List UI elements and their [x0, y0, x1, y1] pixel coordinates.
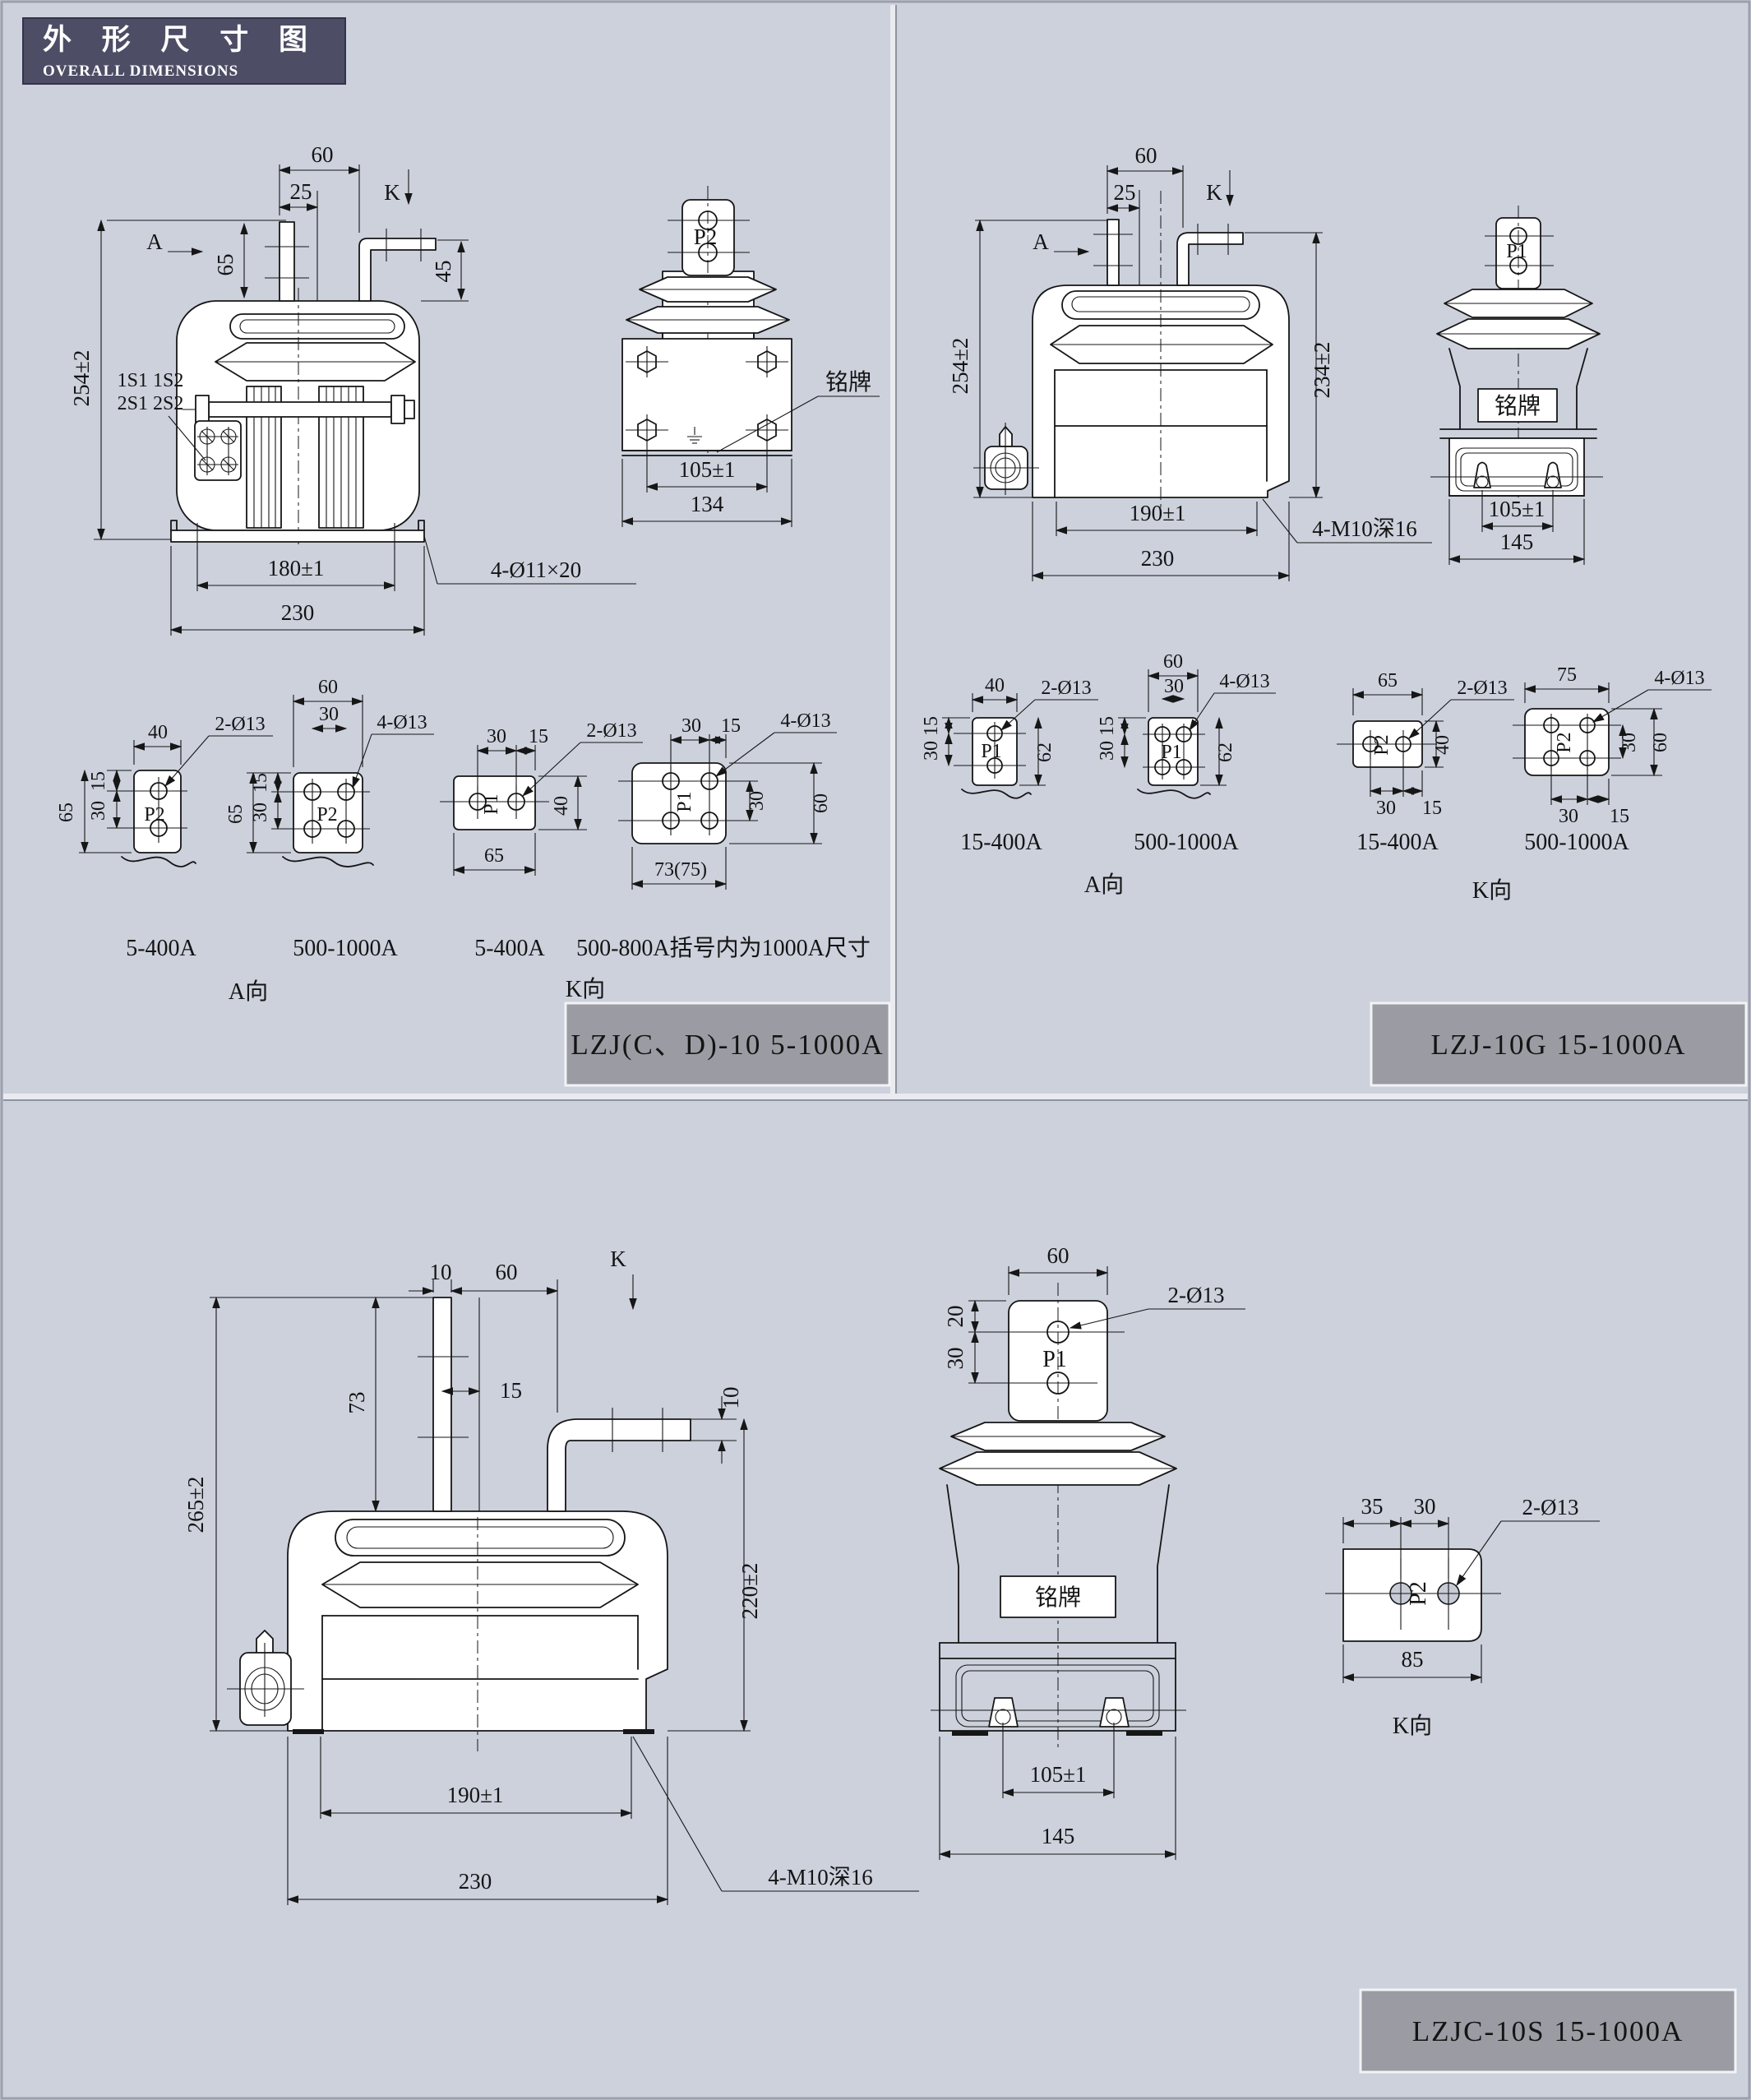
dim-105: 105±1: [1489, 497, 1545, 521]
range-label: 15-400A: [1356, 830, 1439, 855]
dim-15: 15: [529, 726, 548, 747]
view-arrow-k: K: [1206, 180, 1222, 205]
label-holes-2-13: 2-Ø13: [1457, 678, 1507, 699]
label-holes-4-13: 4-Ø13: [377, 712, 427, 733]
label-nameplate: 铭牌: [1495, 393, 1541, 419]
label-holes-4-11: 4-Ø11×20: [491, 557, 581, 582]
dim-105: 105±1: [1030, 1762, 1087, 1787]
terminal-p2: P2: [316, 804, 337, 826]
dim-25: 25: [290, 179, 312, 204]
header-title-cn: 外 形 尺 寸 图: [43, 24, 319, 56]
dim-65: 65: [56, 803, 77, 822]
view-arrow-k: K: [384, 180, 400, 205]
dim-60: 60: [811, 793, 832, 813]
dim-65: 65: [484, 845, 504, 867]
dim-85: 85: [1402, 1647, 1424, 1672]
label-m10: 4-M10深16: [1312, 516, 1417, 541]
dim-145: 145: [1500, 530, 1534, 554]
dim-220: 220±2: [737, 1563, 762, 1620]
view-arrow-k: K: [610, 1247, 626, 1271]
dim-230: 230: [1141, 546, 1175, 571]
title-bar-left: LZJ(C、D)-10 5-1000A: [566, 1003, 889, 1085]
view-label-k: K向: [566, 976, 605, 1002]
terminal-p1: P1: [1161, 742, 1181, 763]
dim-190: 190±1: [1130, 501, 1186, 525]
view-label-k: K向: [1393, 1713, 1432, 1739]
range-label: 500-1000A: [1134, 830, 1239, 855]
dim-15: 15: [721, 715, 741, 737]
dim-65: 65: [1378, 670, 1398, 692]
dim-60: 60: [318, 677, 338, 698]
dim-15: 15: [1422, 798, 1442, 819]
dim-30: 30: [1164, 676, 1184, 697]
title-bar-right: LZJ-10G 15-1000A: [1371, 1003, 1746, 1085]
dim-40: 40: [985, 675, 1005, 696]
dim-30: 30: [88, 801, 109, 821]
dim-40: 40: [551, 796, 572, 816]
dim-190: 190±1: [447, 1783, 504, 1807]
dim-73-75: 73(75): [654, 859, 707, 881]
label-holes-2-13: 2-Ø13: [1522, 1495, 1579, 1519]
dim-15: 15: [88, 771, 109, 791]
terminal-p2: P2: [694, 224, 718, 249]
dim-15: 15: [1610, 806, 1629, 827]
dim-60: 60: [312, 142, 334, 167]
dim-10: 10: [718, 1387, 743, 1409]
label-nameplate: 铭牌: [1035, 1584, 1081, 1611]
range-label: 5-400A: [126, 936, 196, 961]
dim-62: 62: [1034, 742, 1056, 762]
dim-73: 73: [344, 1392, 369, 1414]
dim-35: 35: [1361, 1494, 1384, 1519]
dim-60: 60: [1650, 733, 1671, 752]
dim-30: 30: [487, 726, 506, 747]
dim-30: 30: [319, 704, 339, 725]
dim-230: 230: [281, 600, 315, 625]
range-label: 500-1000A: [1524, 830, 1629, 855]
range-note: 500-800A括号内为1000A尺寸: [576, 935, 871, 961]
terminal-p2: P2: [1554, 732, 1575, 752]
dim-30: 30: [746, 791, 768, 811]
dim-15: 15: [921, 716, 942, 736]
overall-dimensions-drawing: 外 形 尺 寸 图 OVERALL DIMENSIONS: [0, 0, 1751, 2100]
label-holes-4-13: 4-Ø13: [1219, 671, 1269, 692]
terminal-p1: P1: [674, 791, 695, 812]
terminal-p2: P2: [1406, 1581, 1431, 1606]
dim-230: 230: [459, 1869, 492, 1894]
dim-105: 105±1: [679, 457, 736, 482]
dim-60: 60: [1163, 651, 1183, 673]
terminal-p2: P2: [1371, 734, 1393, 755]
dim-145: 145: [1042, 1824, 1075, 1848]
title-bottom: LZJC-10S 15-1000A: [1412, 2015, 1684, 2047]
view-label-a: A向: [1084, 872, 1124, 898]
header-title-en: OVERALL DIMENSIONS: [43, 62, 238, 80]
label-nameplate: 铭牌: [825, 369, 871, 395]
label-holes-2-13: 2-Ø13: [1041, 678, 1091, 699]
view-label-k: K向: [1472, 877, 1512, 904]
dim-40: 40: [148, 722, 168, 743]
title-bar-bottom: LZJC-10S 15-1000A: [1361, 1990, 1735, 2072]
dim-30: 30: [1376, 798, 1396, 819]
dim-254: 254±2: [948, 338, 973, 395]
label-secondary-bottom: 2S1 2S2: [118, 393, 184, 414]
dim-25: 25: [1114, 180, 1136, 205]
dim-60: 60: [1047, 1243, 1070, 1268]
dim-15: 15: [1097, 716, 1118, 736]
dim-20: 20: [943, 1306, 968, 1328]
range-label: 15-400A: [960, 830, 1042, 855]
dim-15: 15: [500, 1378, 522, 1403]
dim-62: 62: [1215, 742, 1236, 762]
dim-234: 234±2: [1310, 342, 1334, 399]
label-holes-2-13: 2-Ø13: [1168, 1283, 1225, 1307]
dim-30: 30: [921, 741, 942, 761]
label-holes-4-13: 4-Ø13: [780, 710, 830, 732]
range-label: 5-400A: [474, 936, 545, 961]
dim-65: 65: [213, 254, 238, 276]
drawing-sheet: 外 形 尺 寸 图 OVERALL DIMENSIONS: [0, 0, 1751, 2100]
dim-30: 30: [681, 715, 701, 737]
label-secondary-top: 1S1 1S2: [118, 370, 184, 391]
dim-60: 60: [1135, 143, 1157, 168]
dim-30: 30: [1619, 733, 1640, 752]
terminal-p1: P1: [1042, 1347, 1067, 1372]
dim-40: 40: [1432, 735, 1453, 755]
title-left: LZJ(C、D)-10 5-1000A: [571, 1029, 884, 1061]
dim-75: 75: [1557, 664, 1577, 686]
header: 外 形 尺 寸 图 OVERALL DIMENSIONS: [23, 18, 345, 84]
dim-30: 30: [943, 1348, 968, 1370]
terminal-p1: P1: [1506, 241, 1527, 262]
dim-134: 134: [691, 492, 724, 516]
dim-65: 65: [225, 804, 247, 824]
dim-30: 30: [1097, 741, 1118, 761]
dim-30: 30: [1559, 806, 1578, 827]
range-label: 500-1000A: [293, 936, 398, 961]
dim-265: 265±2: [183, 1477, 208, 1533]
dim-60: 60: [496, 1260, 518, 1284]
dim-30: 30: [1414, 1494, 1436, 1519]
dim-254: 254±2: [69, 350, 94, 407]
terminal-p2: P2: [144, 804, 164, 826]
label-holes-2-13: 2-Ø13: [215, 714, 265, 735]
dim-45: 45: [431, 261, 455, 283]
label-holes-4-13: 4-Ø13: [1654, 668, 1704, 689]
title-right: LZJ-10G 15-1000A: [1431, 1029, 1687, 1061]
terminal-p1: P1: [481, 793, 502, 814]
dim-10: 10: [430, 1260, 452, 1284]
label-holes-2-13: 2-Ø13: [586, 720, 636, 742]
terminal-p1: P1: [981, 741, 1001, 762]
dim-180: 180±1: [268, 556, 325, 581]
view-arrow-a: A: [1033, 229, 1049, 254]
label-m10: 4-M10深16: [768, 1865, 873, 1890]
view-label-a: A向: [229, 978, 268, 1005]
view-arrow-a: A: [146, 229, 163, 254]
